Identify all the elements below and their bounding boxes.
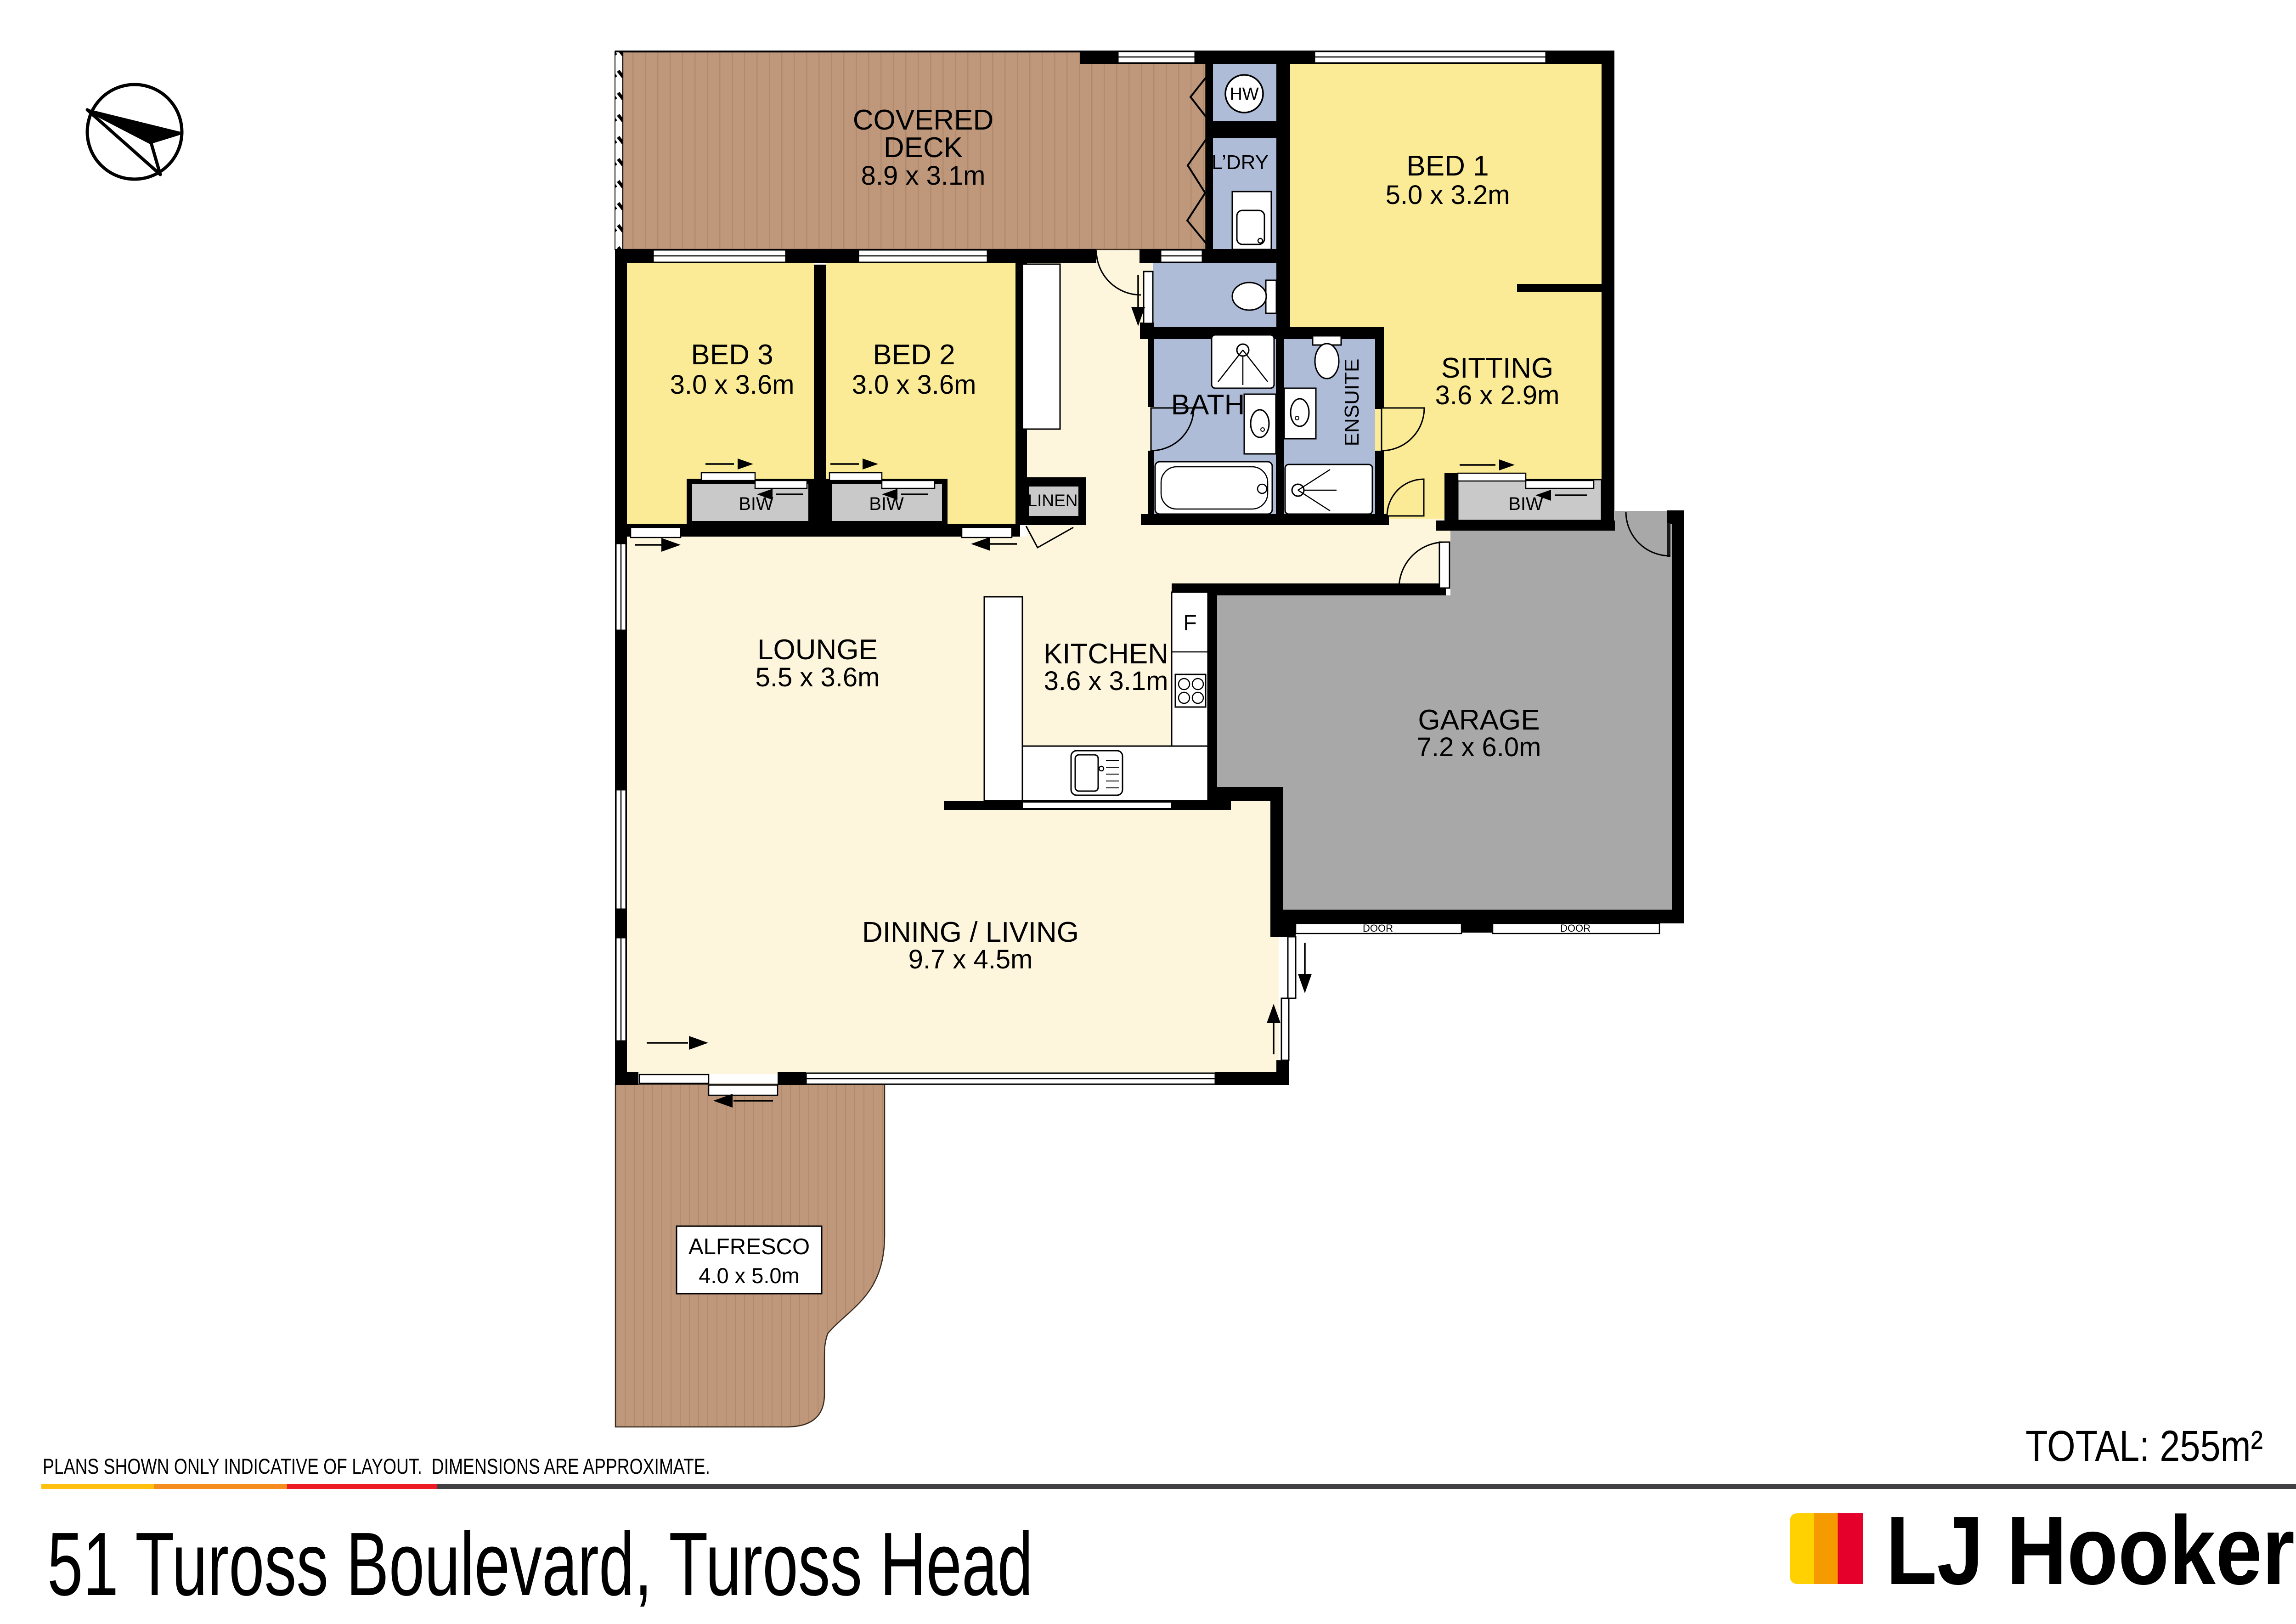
- svg-text:DOOR: DOOR: [1363, 922, 1393, 934]
- svg-text:8.9 x 3.1m: 8.9 x 3.1m: [861, 161, 986, 191]
- svg-text:F: F: [1183, 611, 1196, 635]
- svg-text:L’DRY: L’DRY: [1212, 151, 1269, 174]
- svg-text:SITTING: SITTING: [1441, 352, 1554, 384]
- svg-text:TOTAL: 255m²: TOTAL: 255m²: [2025, 1422, 2263, 1471]
- svg-text:DECK: DECK: [884, 132, 963, 164]
- svg-text:BATH: BATH: [1171, 389, 1245, 421]
- svg-text:DINING / LIVING: DINING / LIVING: [862, 917, 1079, 948]
- svg-text:ALFRESCO: ALFRESCO: [688, 1234, 810, 1259]
- svg-text:PLANS SHOWN ONLY INDICATIVE OF: PLANS SHOWN ONLY INDICATIVE OF LAYOUT. D…: [43, 1454, 710, 1478]
- svg-text:BED 2: BED 2: [873, 339, 955, 371]
- svg-text:51 Tuross Boulevard, Tuross He: 51 Tuross Boulevard, Tuross Head: [47, 1514, 1033, 1614]
- svg-text:BIW: BIW: [1508, 494, 1543, 514]
- svg-text:LJ Hooker: LJ Hooker: [1886, 1496, 2295, 1605]
- svg-text:5.0 x 3.2m: 5.0 x 3.2m: [1386, 180, 1510, 210]
- svg-text:DOOR: DOOR: [1560, 922, 1591, 934]
- svg-text:ENSUITE: ENSUITE: [1341, 359, 1363, 447]
- svg-text:BIW: BIW: [869, 494, 904, 514]
- svg-text:HW: HW: [1230, 85, 1258, 104]
- svg-text:GARAGE: GARAGE: [1418, 704, 1540, 736]
- svg-text:KITCHEN: KITCHEN: [1044, 638, 1168, 670]
- svg-text:BED 1: BED 1: [1406, 150, 1489, 182]
- svg-text:3.0 x 3.6m: 3.0 x 3.6m: [670, 370, 795, 400]
- svg-text:3.6 x 2.9m: 3.6 x 2.9m: [1435, 380, 1560, 410]
- svg-text:9.7 x 4.5m: 9.7 x 4.5m: [908, 945, 1033, 974]
- svg-text:LOUNGE: LOUNGE: [757, 634, 878, 666]
- svg-text:4.0 x 5.0m: 4.0 x 5.0m: [699, 1263, 799, 1288]
- svg-text:COVERED: COVERED: [853, 104, 994, 136]
- svg-text:5.5 x 3.6m: 5.5 x 3.6m: [756, 662, 880, 692]
- svg-text:3.0 x 3.6m: 3.0 x 3.6m: [852, 370, 976, 400]
- svg-text:LINEN: LINEN: [1028, 491, 1078, 510]
- svg-text:BIW: BIW: [739, 494, 773, 514]
- svg-text:7.2 x 6.0m: 7.2 x 6.0m: [1417, 732, 1541, 762]
- svg-text:BED 3: BED 3: [691, 339, 773, 371]
- svg-text:3.6 x 3.1m: 3.6 x 3.1m: [1044, 666, 1168, 696]
